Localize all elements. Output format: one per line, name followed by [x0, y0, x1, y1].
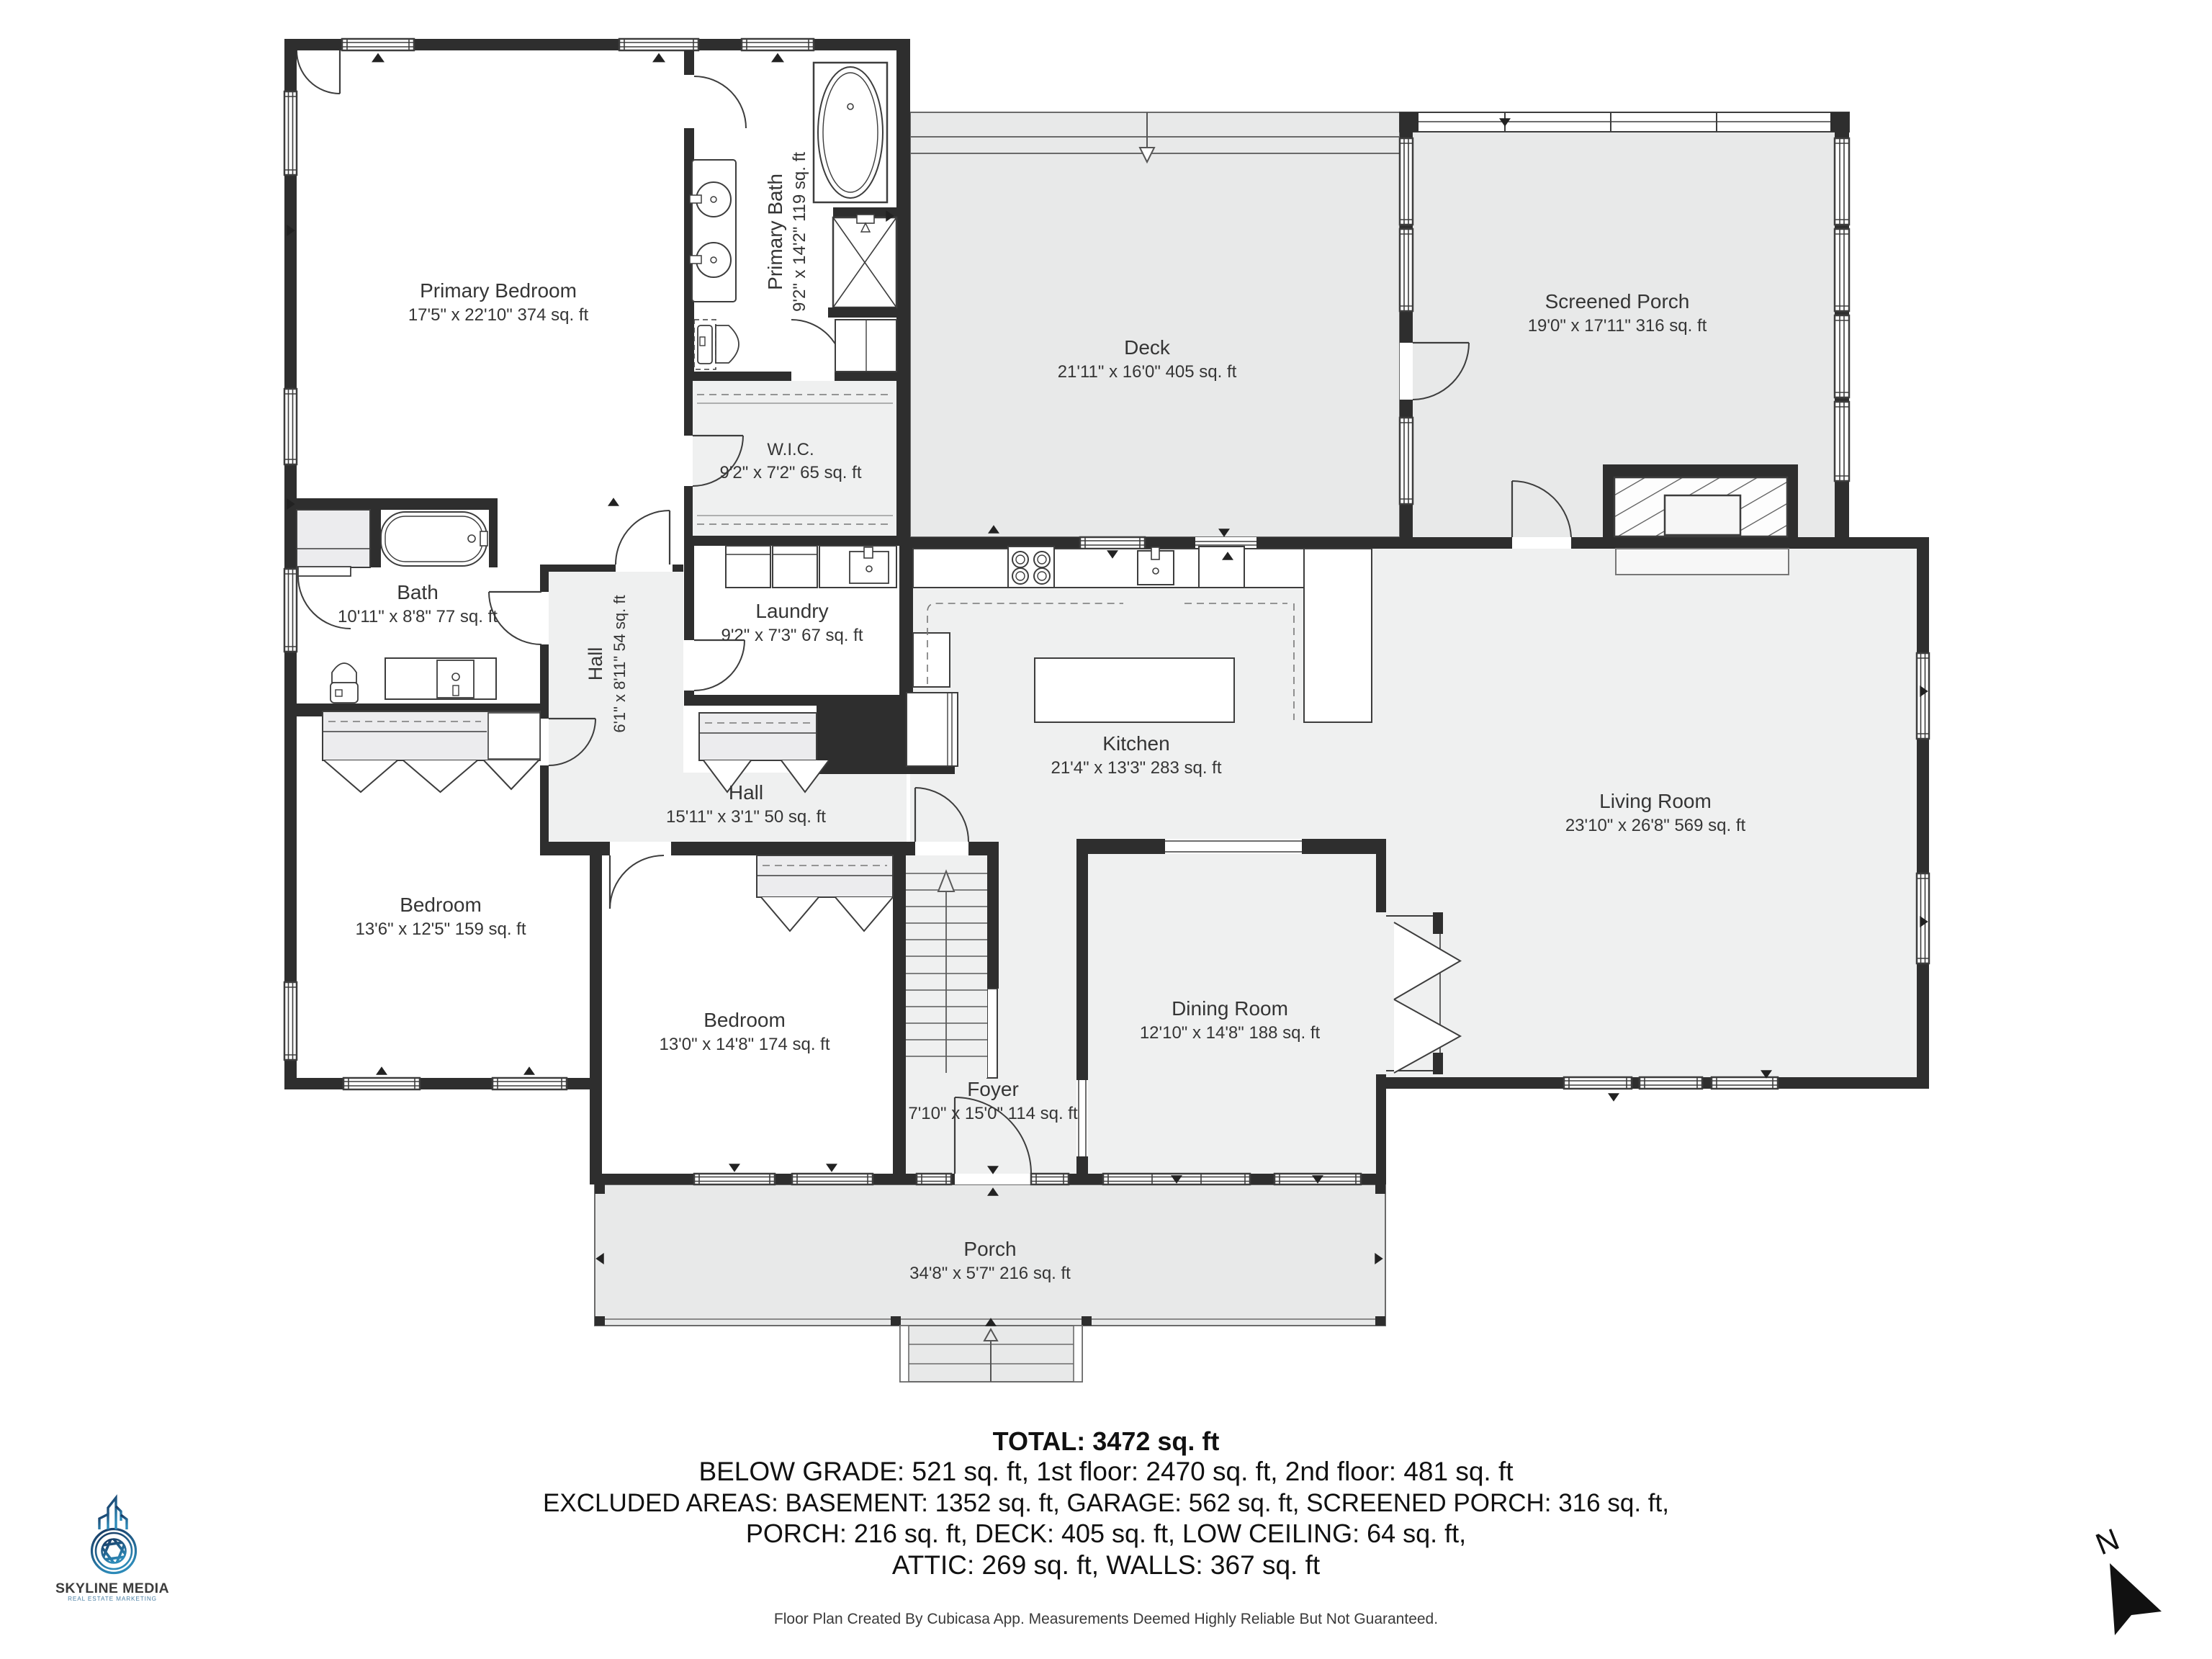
svg-text:12'10" x 14'8" 188 sq. ft: 12'10" x 14'8" 188 sq. ft	[1140, 1023, 1321, 1043]
svg-text:Bedroom: Bedroom	[400, 894, 482, 916]
svg-text:Primary Bath: Primary Bath	[764, 174, 786, 290]
svg-text:TOTAL: 3472 sq. ft: TOTAL: 3472 sq. ft	[993, 1426, 1220, 1456]
svg-text:9'2" x 7'3" 67 sq. ft: 9'2" x 7'3" 67 sq. ft	[721, 626, 863, 645]
svg-text:13'0" x 14'8" 174 sq. ft: 13'0" x 14'8" 174 sq. ft	[659, 1035, 829, 1054]
svg-text:PORCH: 216 sq. ft, DECK: 405 s: PORCH: 216 sq. ft, DECK: 405 sq. ft, LOW…	[746, 1519, 1466, 1548]
svg-text:9'2" x 14'2" 119 sq. ft: 9'2" x 14'2" 119 sq. ft	[790, 152, 809, 312]
svg-text:10'11" x 8'8" 77 sq. ft: 10'11" x 8'8" 77 sq. ft	[338, 607, 498, 626]
svg-text:SKYLINE MEDIA: SKYLINE MEDIA	[55, 1581, 169, 1596]
svg-text:23'10" x 26'8" 569 sq. ft: 23'10" x 26'8" 569 sq. ft	[1565, 816, 1746, 835]
svg-text:Hall: Hall	[729, 781, 763, 804]
svg-text:34'8" x 5'7" 216 sq. ft: 34'8" x 5'7" 216 sq. ft	[909, 1264, 1071, 1283]
svg-text:Kitchen: Kitchen	[1102, 732, 1169, 755]
svg-text:9'2" x 7'2" 65 sq. ft: 9'2" x 7'2" 65 sq. ft	[720, 463, 862, 482]
svg-text:17'5" x 22'10" 374 sq. ft: 17'5" x 22'10" 374 sq. ft	[408, 305, 589, 325]
svg-text:Dining Room: Dining Room	[1172, 997, 1288, 1020]
svg-text:Primary Bedroom: Primary Bedroom	[420, 279, 577, 302]
svg-text:W.I.C.: W.I.C.	[767, 440, 814, 459]
svg-text:19'0" x 17'11" 316 sq. ft: 19'0" x 17'11" 316 sq. ft	[1528, 316, 1707, 336]
svg-text:15'11" x 3'1" 50 sq. ft: 15'11" x 3'1" 50 sq. ft	[666, 807, 826, 827]
svg-text:Foyer: Foyer	[967, 1078, 1019, 1100]
svg-text:6'1" x 8'11" 54 sq. ft: 6'1" x 8'11" 54 sq. ft	[611, 595, 629, 732]
svg-text:Screened Porch: Screened Porch	[1545, 290, 1690, 313]
svg-text:EXCLUDED AREAS: BASEMENT: 1352: EXCLUDED AREAS: BASEMENT: 1352 sq. ft, G…	[543, 1489, 1669, 1517]
svg-text:BELOW GRADE: 521 sq. ft, 1st f: BELOW GRADE: 521 sq. ft, 1st floor: 2470…	[698, 1457, 1514, 1486]
svg-text:Bath: Bath	[397, 581, 439, 603]
svg-text:13'6" x 12'5" 159 sq. ft: 13'6" x 12'5" 159 sq. ft	[355, 920, 526, 939]
svg-text:Living Room: Living Room	[1599, 790, 1712, 812]
svg-text:21'4" x 13'3" 283 sq. ft: 21'4" x 13'3" 283 sq. ft	[1051, 758, 1221, 778]
svg-text:Floor Plan Created By Cubicasa: Floor Plan Created By Cubicasa App. Meas…	[774, 1611, 1438, 1627]
svg-text:Hall: Hall	[585, 647, 606, 681]
svg-text:Deck: Deck	[1124, 336, 1171, 359]
svg-text:21'11" x 16'0" 405 sq. ft: 21'11" x 16'0" 405 sq. ft	[1058, 362, 1237, 382]
svg-text:REAL ESTATE MARKETING: REAL ESTATE MARKETING	[68, 1596, 157, 1602]
svg-text:ATTIC: 269 sq. ft, WALLS: 367: ATTIC: 269 sq. ft, WALLS: 367 sq. ft	[892, 1550, 1321, 1580]
svg-text:Porch: Porch	[963, 1238, 1016, 1260]
svg-text:Bedroom: Bedroom	[703, 1009, 786, 1031]
svg-text:Laundry: Laundry	[755, 600, 828, 622]
svg-text:7'10" x 15'0" 114 sq. ft: 7'10" x 15'0" 114 sq. ft	[908, 1104, 1078, 1123]
